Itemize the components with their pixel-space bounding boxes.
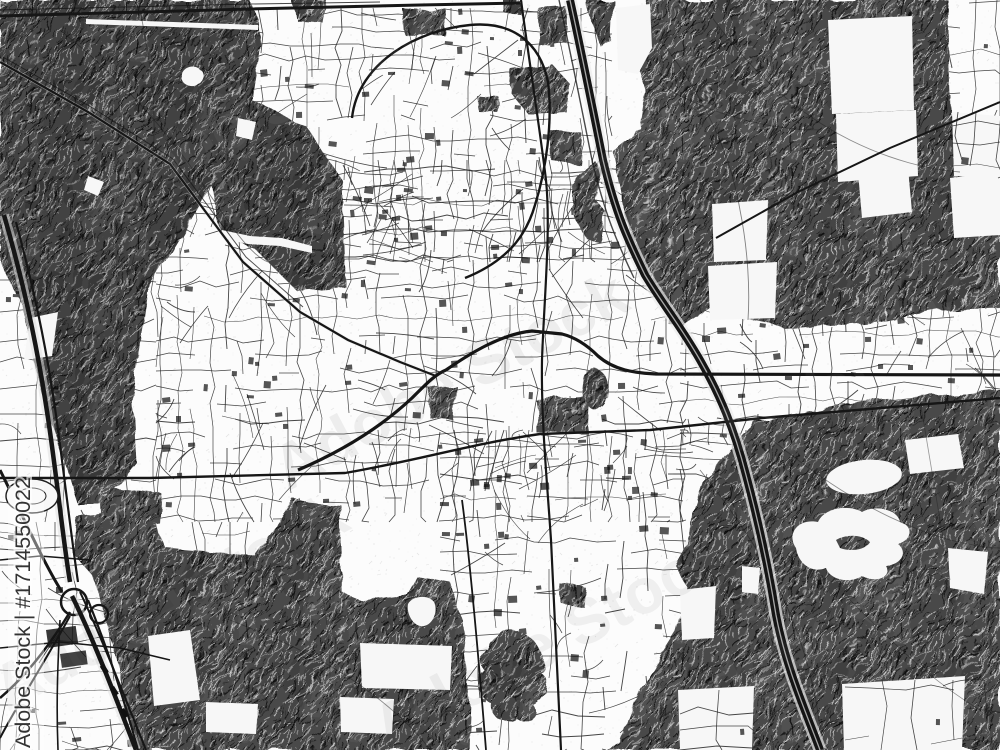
svg-text:Adobe Stock | #1714550022: Adobe Stock | #1714550022 (11, 477, 35, 748)
